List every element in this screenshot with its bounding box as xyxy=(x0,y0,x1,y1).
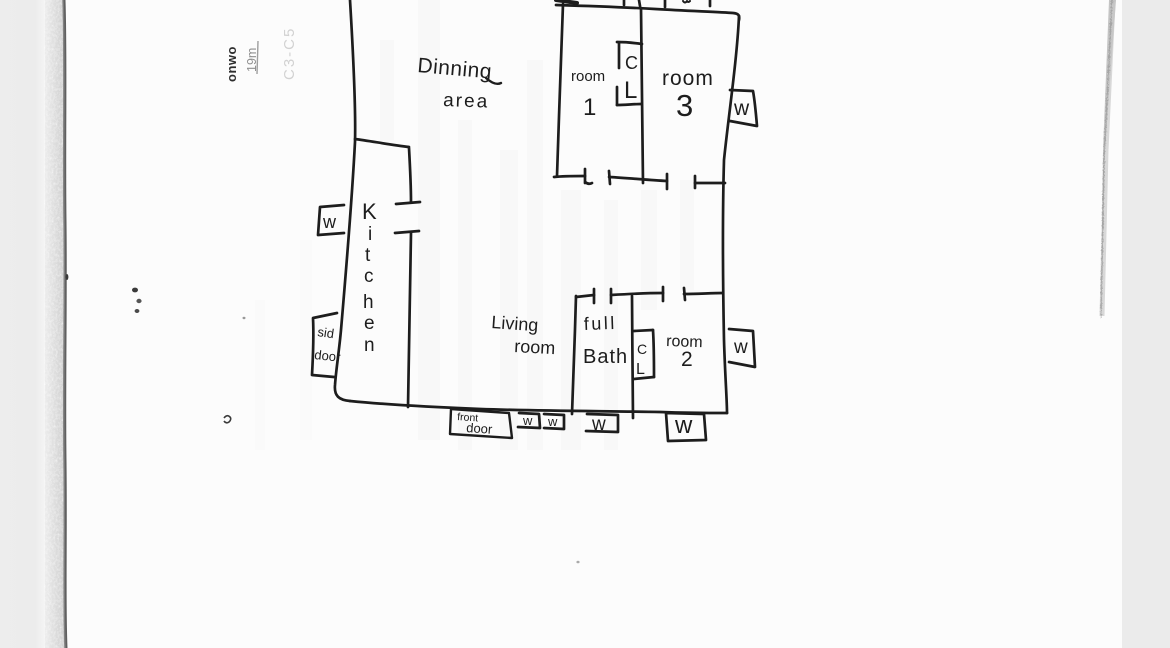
svg-text:sid: sid xyxy=(317,324,336,341)
svg-text:c: c xyxy=(364,266,374,287)
svg-text:w: w xyxy=(733,97,750,120)
svg-text:2: 2 xyxy=(681,348,693,371)
svg-text:n: n xyxy=(364,335,375,356)
svg-text:C: C xyxy=(637,341,647,357)
svg-text:w: w xyxy=(547,414,558,429)
svg-text:1: 1 xyxy=(583,94,596,121)
svg-text:C3-C5: C3-C5 xyxy=(281,27,298,80)
svg-text:h: h xyxy=(363,292,374,313)
svg-text:K: K xyxy=(362,199,377,224)
svg-text:Bath: Bath xyxy=(583,346,628,368)
svg-text:L: L xyxy=(624,77,637,104)
svg-text:room: room xyxy=(662,67,714,90)
svg-text:3: 3 xyxy=(676,88,693,123)
svg-text:room: room xyxy=(514,336,556,358)
svg-text:L: L xyxy=(636,361,645,378)
svg-text:door: door xyxy=(314,347,342,365)
svg-text:Living: Living xyxy=(491,312,539,335)
svg-text:area: area xyxy=(443,90,490,113)
svg-text:w: w xyxy=(591,414,606,435)
svg-text:door: door xyxy=(466,420,494,437)
svg-text:w: w xyxy=(322,212,337,232)
svg-text:full: full xyxy=(583,313,617,334)
svg-text:w: w xyxy=(733,337,748,358)
svg-text:w: w xyxy=(522,413,533,428)
svg-text:room: room xyxy=(571,68,605,85)
svg-text:i: i xyxy=(368,224,372,245)
svg-text:e: e xyxy=(364,313,375,334)
svg-text:t: t xyxy=(365,245,371,266)
svg-text:onwo: onwo xyxy=(224,46,239,82)
svg-text:C: C xyxy=(625,53,638,73)
svg-text:w: w xyxy=(674,412,693,439)
